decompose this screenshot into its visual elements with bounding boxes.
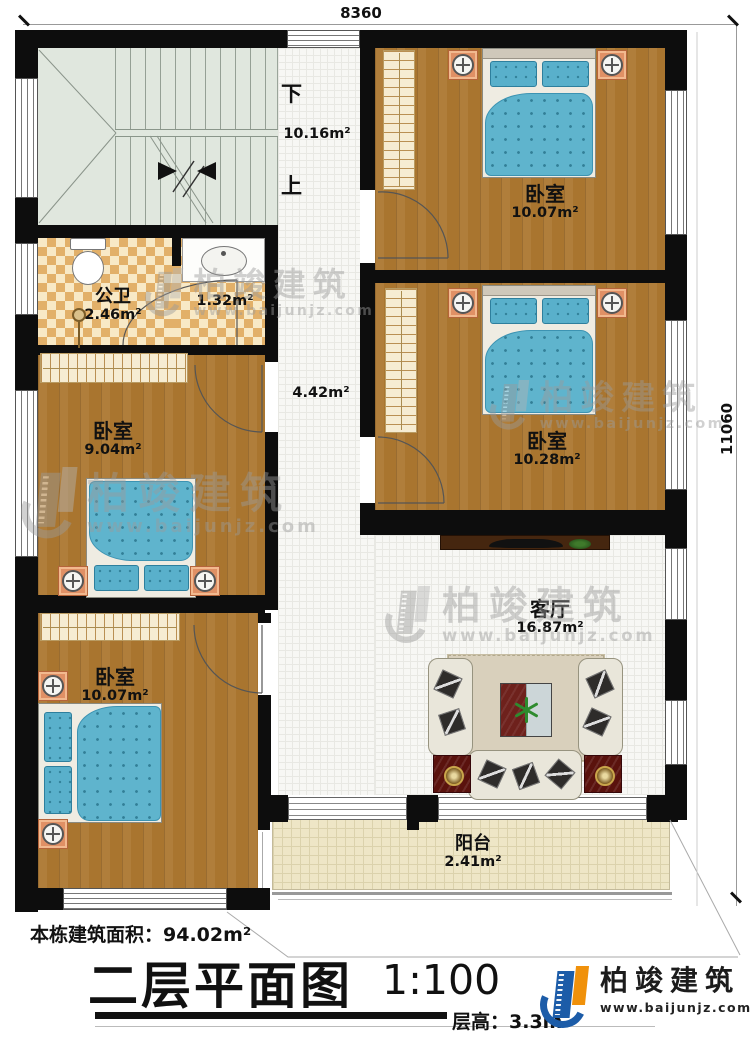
- balcony-pillar: [258, 795, 288, 822]
- stair-hall-area-label: 10.16m²: [272, 126, 362, 143]
- lamp-icon: [601, 54, 623, 76]
- lamp-icon: [452, 292, 474, 314]
- nightstand-icon: [58, 566, 88, 596]
- wall-hall-right-upper: [360, 48, 375, 190]
- sofa-icon: [428, 658, 473, 756]
- sofa-icon: [578, 658, 623, 756]
- nightstand-icon: [597, 288, 627, 318]
- room-area: 4.42m²: [281, 385, 361, 402]
- bed-icon: [38, 703, 162, 823]
- side-table-icon: [433, 755, 471, 793]
- wardrobe-icon: [40, 613, 180, 641]
- room-area: 10.28m²: [497, 452, 597, 469]
- room-label-bedroom-mid-right: 卧室 10.28m²: [497, 430, 597, 469]
- wall-bathroom-divider: [172, 238, 181, 266]
- balcony-sliding-door: [438, 797, 647, 820]
- lamp-icon: [452, 54, 474, 76]
- nightstand-icon: [448, 288, 478, 318]
- watermark: 柏竣建筑www.baijunjz.com: [25, 472, 319, 538]
- leader-line: [670, 820, 740, 955]
- balcony-rail-line: [278, 899, 672, 900]
- room-name: 阳台: [398, 834, 548, 854]
- wardrobe-icon: [383, 50, 415, 190]
- wall-bedrooms-right-divider: [375, 270, 665, 283]
- dimension-line-top: [23, 24, 737, 25]
- window: [287, 30, 360, 48]
- sheet-title: 二层平面图: [88, 946, 353, 1018]
- nightstand-icon: [38, 671, 68, 701]
- side-table-icon: [584, 755, 622, 793]
- lamp-icon: [194, 570, 216, 592]
- watermark: 柏竣建筑www.baijunjz.com: [145, 268, 374, 319]
- wardrobe-icon: [40, 353, 188, 383]
- window: [665, 548, 687, 620]
- nightstand-icon: [448, 50, 478, 80]
- room-area: 10.07m²: [65, 688, 165, 705]
- window: [63, 888, 227, 910]
- balcony-rail-line: [272, 892, 672, 895]
- stair-hall-floor: [278, 48, 360, 795]
- brand-name: 柏竣建筑: [600, 966, 750, 997]
- room-name: 卧室: [63, 420, 163, 442]
- room-name: 卧室: [65, 666, 165, 688]
- bed-icon: [482, 48, 596, 178]
- nightstand-icon: [597, 50, 627, 80]
- wall-stair-bottom: [38, 225, 278, 238]
- sheet-scale: 1:100: [382, 956, 500, 1004]
- balcony-pillar-foot: [258, 822, 270, 830]
- stair-down-label: 下: [281, 78, 302, 108]
- lamp-icon: [601, 292, 623, 314]
- lamp-icon: [62, 570, 84, 592]
- wardrobe-icon: [385, 288, 417, 433]
- brand-website: www.baijunjz.com: [600, 1000, 750, 1015]
- stair-rail: [115, 129, 278, 137]
- wall-bottom-right-of-window: [227, 888, 270, 910]
- plant-icon: [569, 539, 591, 549]
- room-area: 10.07m²: [495, 205, 595, 222]
- room-label-balcony: 阳台 2.41m²: [398, 834, 548, 870]
- wall-hall-right-lower: [360, 503, 375, 535]
- dimension-width-label: 8360: [251, 4, 471, 22]
- wall-bottom-left-corner: [38, 888, 63, 910]
- dimension-line-right: [736, 24, 737, 906]
- lamp-icon: [42, 675, 64, 697]
- stairwell-floor: [38, 48, 278, 225]
- title-underline: [95, 1012, 447, 1019]
- window: [665, 700, 687, 765]
- coffee-table-icon: [500, 683, 552, 737]
- wall-bedroom-bl-right: [258, 695, 271, 800]
- room-name: 卧室: [497, 430, 597, 452]
- balcony-pillar-foot: [407, 822, 419, 830]
- nightstand-icon: [190, 566, 220, 596]
- hall-connector-floor: [360, 510, 375, 795]
- wall-bedroom-ml-right-stub: [265, 345, 278, 362]
- building-area-label: 本栋建筑面积：94.02m²: [30, 920, 251, 947]
- room-label-bedroom-bottom-left: 卧室 10.07m²: [65, 666, 165, 705]
- faucet-icon: [221, 251, 226, 256]
- wall-living-top: [375, 510, 665, 535]
- lamp-icon: [42, 823, 64, 845]
- stair-up-label: 上: [281, 170, 302, 200]
- nightstand-icon: [38, 819, 68, 849]
- room-name: 卧室: [495, 183, 595, 205]
- watermark-logo-icon: [21, 467, 81, 543]
- watermark-logo-icon: [145, 268, 186, 319]
- room-label-bedroom-top-right: 卧室 10.07m²: [495, 183, 595, 222]
- window: [15, 78, 38, 198]
- brand-logo: 柏竣建筑 www.baijunjz.com: [540, 966, 750, 1032]
- room-label-bedroom-mid-left: 卧室 9.04m²: [63, 420, 163, 459]
- tv-cabinet-icon: [440, 535, 610, 550]
- room-label-hallway: 4.42m²: [281, 385, 361, 402]
- watermark-logo-icon: [490, 380, 532, 433]
- wall-bedroom-bl-right-stub: [258, 613, 271, 623]
- balcony-sliding-door: [288, 797, 407, 820]
- tv-icon: [489, 539, 563, 548]
- sofa-icon: [468, 750, 582, 800]
- balcony-pillar: [647, 795, 678, 822]
- watermark: 柏竣建筑www.baijunjz.com: [490, 380, 725, 433]
- window: [665, 90, 687, 235]
- room-area: 2.41m²: [398, 854, 548, 871]
- room-area: 9.04m²: [63, 442, 163, 459]
- floor-plan-sheet: 8360 11060: [0, 0, 750, 1037]
- balcony-pillar: [407, 795, 438, 822]
- watermark: 柏竣建筑www.baijunjz.com: [385, 586, 655, 647]
- window: [15, 243, 38, 315]
- brand-logo-icon: [540, 966, 592, 1032]
- watermark-logo-icon: [385, 586, 433, 647]
- toilet-icon: [66, 238, 110, 286]
